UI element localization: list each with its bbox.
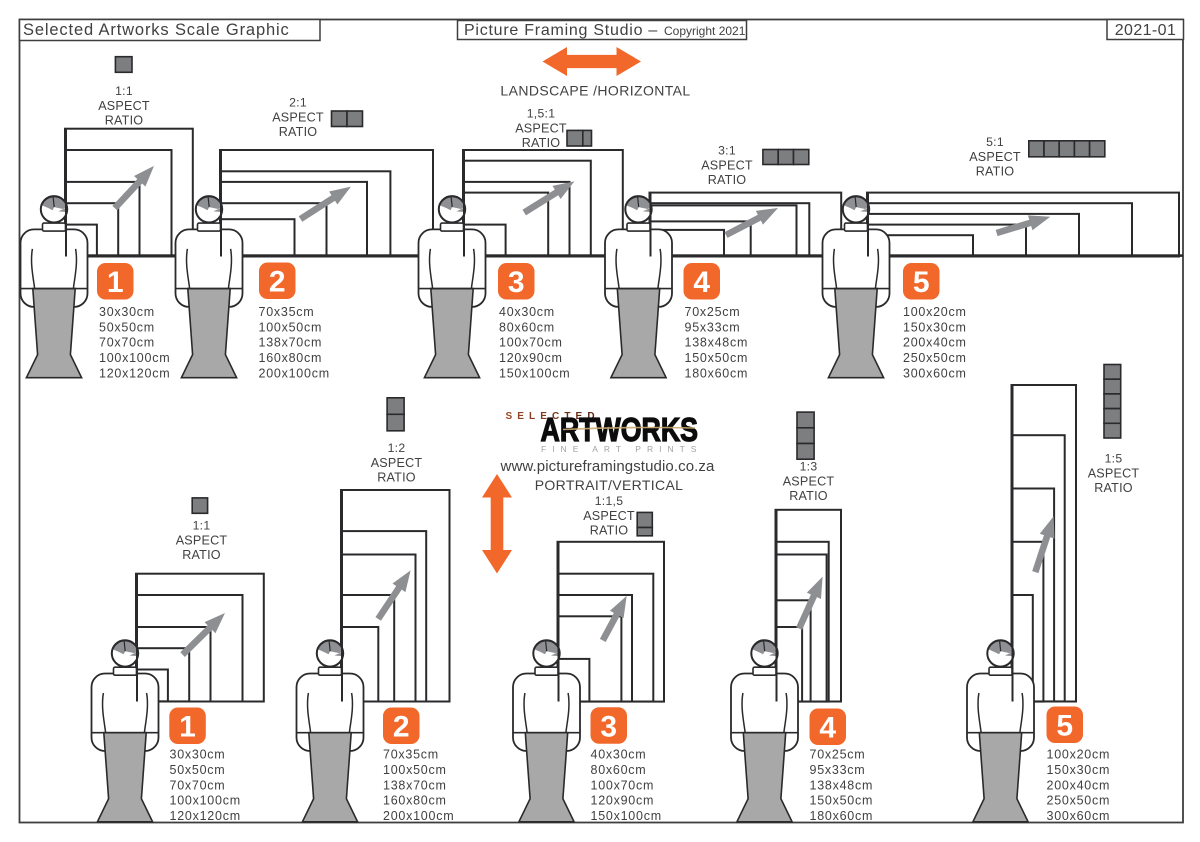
svg-text:150x50cm: 150x50cm bbox=[810, 794, 874, 808]
svg-text:300x60cm: 300x60cm bbox=[1047, 809, 1111, 823]
svg-text:138x70cm: 138x70cm bbox=[383, 778, 447, 792]
svg-text:300x60cm: 300x60cm bbox=[903, 367, 967, 381]
svg-text:150x30cm: 150x30cm bbox=[1047, 763, 1111, 777]
svg-text:FINE ART PRINTS: FINE ART PRINTS bbox=[541, 444, 702, 454]
svg-text:30x30cm: 30x30cm bbox=[170, 748, 226, 762]
svg-text:150x30cm: 150x30cm bbox=[903, 320, 967, 334]
svg-text:40x30cm: 40x30cm bbox=[499, 305, 555, 319]
svg-text:30x30cm: 30x30cm bbox=[99, 305, 155, 319]
svg-text:100x100cm: 100x100cm bbox=[99, 351, 170, 365]
svg-text:1:3: 1:3 bbox=[800, 460, 818, 474]
svg-text:ASPECT: ASPECT bbox=[515, 121, 567, 135]
svg-text:RATIO: RATIO bbox=[279, 125, 318, 139]
svg-text:LANDSCAPE /HORIZONTAL: LANDSCAPE /HORIZONTAL bbox=[500, 82, 690, 98]
svg-text:70x35cm: 70x35cm bbox=[383, 748, 439, 762]
svg-text:70x25cm: 70x25cm bbox=[685, 305, 741, 319]
svg-text:80x60cm: 80x60cm bbox=[499, 320, 555, 334]
svg-text:95x33cm: 95x33cm bbox=[810, 763, 866, 777]
svg-text:138x70cm: 138x70cm bbox=[259, 336, 323, 350]
svg-text:ASPECT: ASPECT bbox=[701, 158, 753, 172]
svg-text:50x50cm: 50x50cm bbox=[170, 763, 226, 777]
svg-text:70x35cm: 70x35cm bbox=[259, 305, 315, 319]
svg-text:95x33cm: 95x33cm bbox=[685, 320, 741, 334]
svg-text:200x100cm: 200x100cm bbox=[383, 809, 454, 823]
svg-text:ASPECT: ASPECT bbox=[98, 99, 150, 113]
svg-text:120x90cm: 120x90cm bbox=[591, 794, 655, 808]
svg-text:100x70cm: 100x70cm bbox=[499, 336, 563, 350]
svg-text:5: 5 bbox=[913, 266, 930, 299]
svg-text:RATIO: RATIO bbox=[105, 114, 144, 128]
svg-text:70x25cm: 70x25cm bbox=[810, 748, 866, 762]
svg-text:70x70cm: 70x70cm bbox=[99, 336, 155, 350]
svg-text:1: 1 bbox=[179, 711, 196, 744]
svg-text:www.pictureframingstudio.co.za: www.pictureframingstudio.co.za bbox=[500, 458, 715, 475]
svg-text:160x80cm: 160x80cm bbox=[259, 351, 323, 365]
svg-text:100x70cm: 100x70cm bbox=[591, 778, 655, 792]
svg-text:1:1: 1:1 bbox=[115, 84, 133, 98]
svg-text:4: 4 bbox=[819, 712, 836, 745]
svg-text:2: 2 bbox=[269, 266, 286, 299]
svg-text:1:1,5: 1:1,5 bbox=[595, 494, 624, 508]
svg-text:2: 2 bbox=[393, 711, 410, 744]
svg-text:ASPECT: ASPECT bbox=[969, 150, 1021, 164]
svg-text:Picture Framing Studio –: Picture Framing Studio – bbox=[464, 22, 658, 39]
svg-text:200x40cm: 200x40cm bbox=[1047, 778, 1111, 792]
svg-text:Selected Artworks Scale Graphi: Selected Artworks Scale Graphic bbox=[23, 21, 290, 39]
svg-text:Copyright 2021: Copyright 2021 bbox=[664, 24, 746, 38]
svg-text:ASPECT: ASPECT bbox=[371, 456, 423, 470]
svg-text:200x40cm: 200x40cm bbox=[903, 336, 967, 350]
svg-text:150x100cm: 150x100cm bbox=[499, 367, 570, 381]
svg-text:ASPECT: ASPECT bbox=[783, 474, 835, 488]
svg-text:3:1: 3:1 bbox=[718, 144, 736, 158]
svg-text:4: 4 bbox=[693, 266, 710, 299]
svg-text:100x50cm: 100x50cm bbox=[259, 320, 323, 334]
svg-text:1:5: 1:5 bbox=[1105, 452, 1123, 466]
svg-text:80x60cm: 80x60cm bbox=[591, 763, 647, 777]
svg-text:1:2: 1:2 bbox=[388, 441, 406, 455]
svg-text:250x50cm: 250x50cm bbox=[1047, 794, 1111, 808]
svg-text:RATIO: RATIO bbox=[522, 136, 561, 150]
svg-text:RATIO: RATIO bbox=[708, 173, 747, 187]
svg-text:100x100cm: 100x100cm bbox=[170, 794, 241, 808]
svg-text:100x50cm: 100x50cm bbox=[383, 763, 447, 777]
svg-text:RATIO: RATIO bbox=[789, 489, 828, 503]
svg-text:180x60cm: 180x60cm bbox=[810, 809, 874, 823]
svg-text:5:1: 5:1 bbox=[986, 135, 1004, 149]
svg-text:1: 1 bbox=[107, 266, 124, 299]
svg-text:RATIO: RATIO bbox=[182, 548, 221, 562]
svg-text:RATIO: RATIO bbox=[1094, 481, 1133, 495]
svg-text:50x50cm: 50x50cm bbox=[99, 320, 155, 334]
svg-text:120x90cm: 120x90cm bbox=[499, 351, 563, 365]
svg-text:2:1: 2:1 bbox=[289, 96, 307, 110]
svg-text:200x100cm: 200x100cm bbox=[259, 367, 330, 381]
svg-text:100x20cm: 100x20cm bbox=[1047, 748, 1111, 762]
svg-text:150x50cm: 150x50cm bbox=[685, 351, 749, 365]
svg-text:RATIO: RATIO bbox=[377, 471, 416, 485]
svg-text:150x100cm: 150x100cm bbox=[591, 809, 662, 823]
svg-text:ASPECT: ASPECT bbox=[1088, 466, 1140, 480]
svg-text:ASPECT: ASPECT bbox=[176, 533, 228, 547]
svg-text:160x80cm: 160x80cm bbox=[383, 794, 447, 808]
svg-text:RATIO: RATIO bbox=[976, 165, 1015, 179]
svg-text:5: 5 bbox=[1056, 710, 1073, 743]
svg-text:138x48cm: 138x48cm bbox=[685, 336, 749, 350]
svg-text:120x120cm: 120x120cm bbox=[99, 367, 170, 381]
svg-text:180x60cm: 180x60cm bbox=[685, 367, 749, 381]
svg-text:3: 3 bbox=[600, 710, 617, 743]
svg-text:ASPECT: ASPECT bbox=[583, 509, 635, 523]
svg-text:ASPECT: ASPECT bbox=[272, 110, 324, 124]
svg-text:1,5:1: 1,5:1 bbox=[527, 107, 556, 121]
svg-text:1:1: 1:1 bbox=[193, 519, 211, 533]
svg-text:2021-01: 2021-01 bbox=[1115, 22, 1177, 39]
svg-text:3: 3 bbox=[508, 266, 525, 299]
svg-text:250x50cm: 250x50cm bbox=[903, 351, 967, 365]
svg-text:PORTRAIT/VERTICAL: PORTRAIT/VERTICAL bbox=[535, 477, 684, 493]
svg-text:70x70cm: 70x70cm bbox=[170, 778, 226, 792]
svg-text:100x20cm: 100x20cm bbox=[903, 305, 967, 319]
svg-text:138x48cm: 138x48cm bbox=[810, 778, 874, 792]
svg-text:40x30cm: 40x30cm bbox=[591, 748, 647, 762]
svg-text:120x120cm: 120x120cm bbox=[170, 809, 241, 823]
svg-text:RATIO: RATIO bbox=[590, 524, 629, 538]
